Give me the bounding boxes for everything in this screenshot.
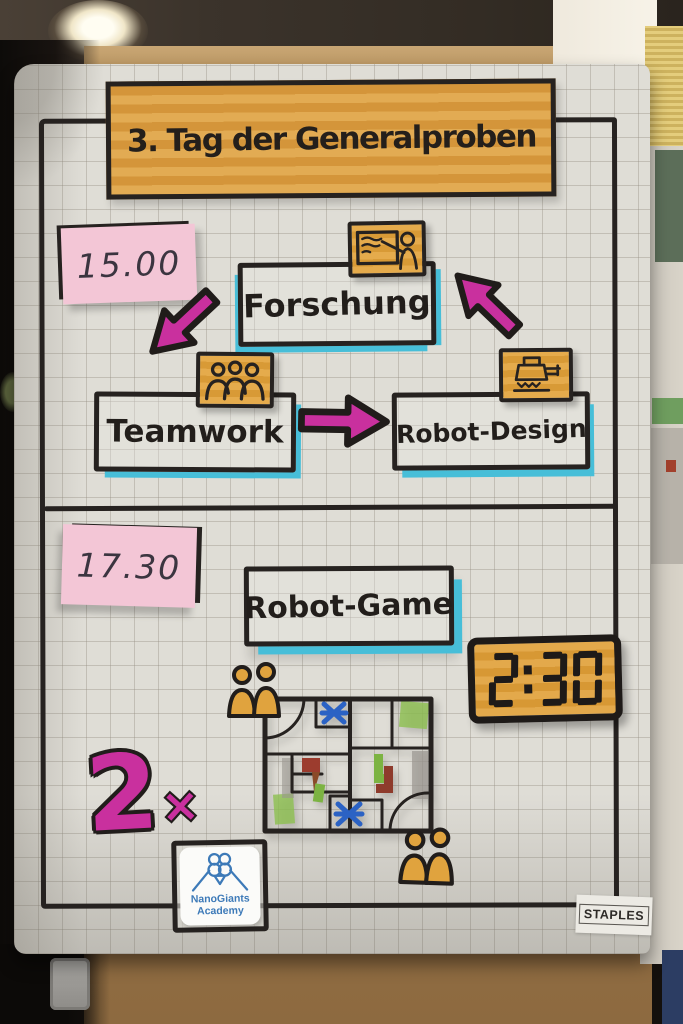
sticker-line1: NanoGiants	[191, 892, 250, 905]
sticker-line2: Academy	[197, 905, 244, 918]
wall-poster-mark	[666, 460, 676, 472]
presentation-board-glyph	[354, 226, 421, 271]
wall-lamp	[645, 26, 683, 154]
station-label: Robot-Game	[244, 586, 454, 626]
sticker-drawn-frame: NanoGiants Academy	[171, 839, 269, 933]
station-box-robot-design: Robot-Design	[392, 391, 591, 470]
door-hinge	[50, 958, 90, 1010]
nanogiants-sticker: NanoGiants Academy	[179, 846, 260, 925]
station-label: Forschung	[243, 283, 432, 326]
presentation-board-icon	[348, 220, 427, 277]
wall-tag	[652, 398, 683, 424]
paper-brand-text: STAPLES	[579, 904, 650, 926]
wall-sign	[655, 150, 683, 262]
wall-poster-edge	[651, 428, 683, 564]
two-figures-icon	[224, 662, 286, 720]
arrow-right-icon	[296, 391, 393, 451]
seven-segment-digits	[485, 651, 605, 708]
multiply-icon: ×	[160, 777, 201, 833]
poster-title: 3. Tag der Generalproben	[126, 119, 535, 160]
session2-time: 17.30	[76, 545, 182, 587]
three-people-glyph	[204, 359, 266, 402]
session1-time: 15.00	[76, 243, 182, 286]
title-banner: 3. Tag der Generalproben	[106, 78, 557, 199]
robot-game-mat-drawing	[262, 696, 434, 834]
countdown-display	[467, 634, 623, 724]
station-label: Teamwork	[106, 414, 283, 451]
corner-object	[662, 950, 683, 1024]
paper-brand-label: STAPLES	[575, 895, 652, 936]
multiplier-value: 2	[84, 745, 161, 842]
station-box-robot-game: Robot-Game	[244, 565, 454, 646]
nanogiants-owl-logo	[183, 850, 256, 893]
station-label: Robot-Design	[395, 413, 587, 448]
flipchart-photo: 3. Tag der Generalproben 15.00 Forschung	[0, 0, 683, 1024]
robot-icon	[499, 348, 573, 403]
sticky-note-time-2: 17.30	[61, 524, 197, 608]
two-figures-icon	[395, 825, 461, 887]
three-people-icon	[196, 352, 274, 409]
rounds-multiplier: 2 ×	[84, 743, 202, 842]
robot-glyph	[507, 355, 565, 396]
